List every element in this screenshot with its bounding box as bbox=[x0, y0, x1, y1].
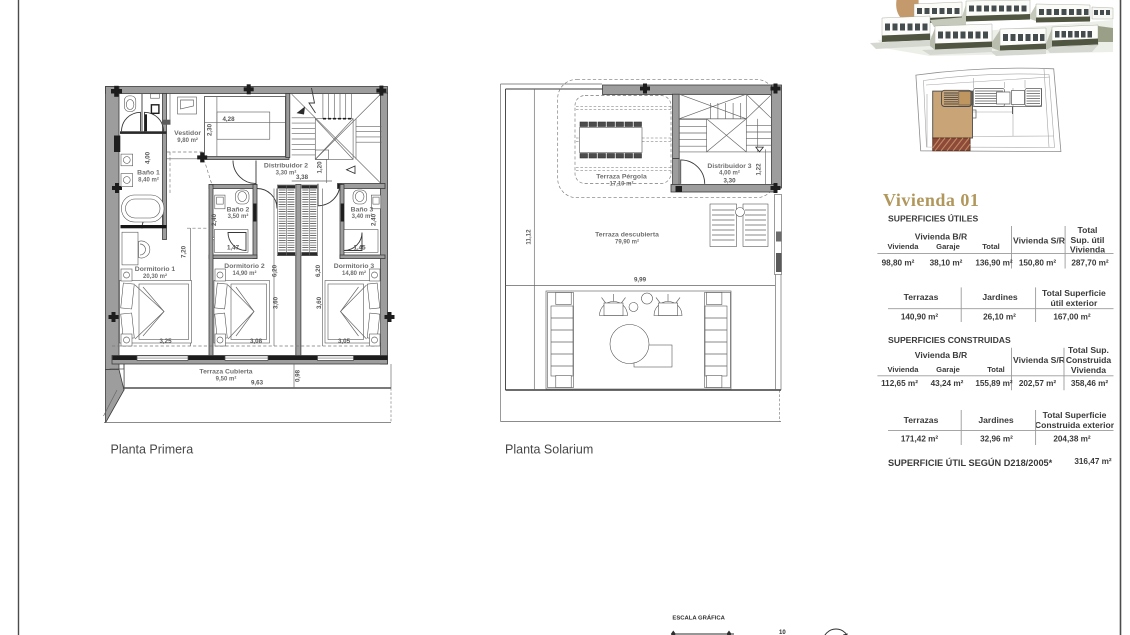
svg-text:2,40: 2,40 bbox=[211, 213, 218, 226]
svg-text:79,90 m²: 79,90 m² bbox=[615, 239, 639, 246]
svg-text:9,99: 9,99 bbox=[634, 277, 647, 284]
svg-text:287,70 m²: 287,70 m² bbox=[1071, 259, 1109, 268]
svg-text:Vivienda S/R: Vivienda S/R bbox=[1013, 355, 1066, 365]
svg-text:Terraza Cubierta: Terraza Cubierta bbox=[199, 369, 252, 376]
svg-text:Total Superficie: Total Superficie bbox=[1042, 288, 1106, 298]
svg-text:Terraza Pérgola: Terraza Pérgola bbox=[596, 174, 647, 181]
svg-text:3,30 m²: 3,30 m² bbox=[276, 170, 297, 177]
svg-text:Baño 2: Baño 2 bbox=[227, 207, 250, 214]
svg-text:Vivienda 01: Vivienda 01 bbox=[883, 190, 979, 210]
svg-text:Jardines: Jardines bbox=[978, 415, 1014, 425]
svg-text:3,05: 3,05 bbox=[338, 338, 351, 345]
svg-text:155,89 m²: 155,89 m² bbox=[975, 379, 1013, 388]
svg-text:3,40 m²: 3,40 m² bbox=[352, 213, 373, 220]
svg-text:3,60: 3,60 bbox=[273, 296, 280, 309]
svg-text:Dormitorio 1: Dormitorio 1 bbox=[135, 266, 176, 273]
svg-text:SUPERFICIE ÚTIL SEGÚN D218/200: SUPERFICIE ÚTIL SEGÚN D218/2005* bbox=[888, 457, 1053, 468]
svg-text:26,10 m²: 26,10 m² bbox=[983, 313, 1016, 322]
svg-text:204,38 m²: 204,38 m² bbox=[1053, 435, 1091, 444]
svg-text:Terrazas: Terrazas bbox=[904, 415, 939, 425]
svg-text:1,22: 1,22 bbox=[755, 163, 762, 176]
svg-text:38,10 m²: 38,10 m² bbox=[930, 259, 963, 268]
svg-text:Vivienda S/R: Vivienda S/R bbox=[1013, 236, 1066, 246]
svg-text:14,90 m²: 14,90 m² bbox=[232, 270, 256, 277]
svg-text:9,63: 9,63 bbox=[251, 380, 264, 387]
svg-text:171,42 m²: 171,42 m² bbox=[901, 435, 939, 444]
svg-text:Planta Primera: Planta Primera bbox=[111, 443, 194, 457]
svg-text:3,38: 3,38 bbox=[296, 174, 309, 181]
svg-text:112,65 m²: 112,65 m² bbox=[881, 379, 918, 388]
svg-text:9,80 m²: 9,80 m² bbox=[177, 137, 198, 144]
svg-text:3,30: 3,30 bbox=[723, 178, 736, 185]
svg-text:167,00 m²: 167,00 m² bbox=[1053, 313, 1091, 322]
svg-text:4,00 m²: 4,00 m² bbox=[719, 170, 740, 177]
svg-text:Vivienda: Vivienda bbox=[887, 242, 919, 251]
svg-text:20,30 m²: 20,30 m² bbox=[143, 273, 167, 280]
svg-text:136,90 m²: 136,90 m² bbox=[975, 259, 1013, 268]
svg-text:3,50 m²: 3,50 m² bbox=[228, 213, 249, 220]
svg-text:6,20: 6,20 bbox=[272, 264, 279, 277]
svg-text:6,20: 6,20 bbox=[315, 264, 322, 277]
svg-text:Vivienda: Vivienda bbox=[887, 365, 919, 374]
svg-text:Total: Total bbox=[987, 365, 1005, 374]
svg-text:150,80 m²: 150,80 m² bbox=[1019, 259, 1057, 268]
svg-text:1,45: 1,45 bbox=[353, 245, 366, 252]
svg-text:Construida: Construida bbox=[1066, 355, 1112, 365]
svg-text:43,24 m²: 43,24 m² bbox=[931, 379, 964, 388]
svg-text:10: 10 bbox=[779, 630, 786, 635]
svg-text:8,40 m²: 8,40 m² bbox=[138, 177, 159, 184]
svg-text:140,90 m²: 140,90 m² bbox=[901, 313, 939, 322]
svg-text:Vivienda: Vivienda bbox=[1070, 244, 1105, 254]
svg-text:Vivienda: Vivienda bbox=[1071, 365, 1106, 375]
svg-text:3,25: 3,25 bbox=[159, 338, 172, 345]
svg-text:7,20: 7,20 bbox=[181, 245, 188, 258]
svg-text:98,80 m²: 98,80 m² bbox=[882, 259, 915, 268]
svg-text:Dormitorio 3: Dormitorio 3 bbox=[334, 263, 375, 270]
svg-text:Baño 3: Baño 3 bbox=[351, 207, 374, 214]
svg-text:1,20: 1,20 bbox=[317, 161, 324, 174]
svg-text:3,08: 3,08 bbox=[250, 338, 263, 345]
svg-text:0,98: 0,98 bbox=[295, 369, 302, 382]
svg-text:2,30: 2,30 bbox=[207, 123, 214, 136]
svg-text:Garaje: Garaje bbox=[936, 365, 960, 374]
svg-text:1,47: 1,47 bbox=[227, 245, 240, 252]
svg-text:Total Superficie: Total Superficie bbox=[1043, 410, 1107, 420]
svg-text:316,47 m²: 316,47 m² bbox=[1074, 457, 1112, 466]
svg-text:Baño 1: Baño 1 bbox=[137, 170, 160, 177]
svg-text:17,10 m²: 17,10 m² bbox=[609, 181, 633, 188]
svg-text:Planta Solarium: Planta Solarium bbox=[505, 443, 593, 457]
svg-text:Total: Total bbox=[982, 242, 1000, 251]
svg-text:Vivienda B/R: Vivienda B/R bbox=[915, 350, 968, 360]
svg-text:358,46 m²: 358,46 m² bbox=[1071, 379, 1109, 388]
svg-text:Garaje: Garaje bbox=[936, 242, 960, 251]
svg-text:202,57 m²: 202,57 m² bbox=[1019, 379, 1057, 388]
svg-text:9,50 m²: 9,50 m² bbox=[216, 376, 237, 383]
svg-text:Distribuidor 2: Distribuidor 2 bbox=[264, 163, 308, 170]
svg-text:SUPERFICIES CONSTRUIDAS: SUPERFICIES CONSTRUIDAS bbox=[888, 335, 1011, 345]
svg-text:4,28: 4,28 bbox=[222, 116, 235, 123]
svg-text:SUPERFICIES ÚTILES: SUPERFICIES ÚTILES bbox=[888, 213, 979, 224]
svg-text:Total Sup.: Total Sup. bbox=[1068, 345, 1109, 355]
svg-text:Vestidor: Vestidor bbox=[174, 130, 201, 137]
svg-text:32,96 m²: 32,96 m² bbox=[980, 435, 1013, 444]
svg-text:Distribuidor 3: Distribuidor 3 bbox=[707, 163, 751, 170]
svg-text:11,12: 11,12 bbox=[526, 229, 533, 245]
svg-text:Sup. útil: Sup. útil bbox=[1071, 235, 1105, 245]
svg-text:Total: Total bbox=[1078, 225, 1098, 235]
svg-text:14,80 m²: 14,80 m² bbox=[342, 270, 366, 277]
svg-text:3,60: 3,60 bbox=[316, 296, 323, 309]
svg-text:4,00: 4,00 bbox=[145, 151, 152, 164]
svg-text:ESCALA GRÁFICA: ESCALA GRÁFICA bbox=[672, 614, 725, 621]
svg-text:Jardines: Jardines bbox=[982, 292, 1018, 302]
svg-text:útil exterior: útil exterior bbox=[1050, 298, 1097, 308]
svg-text:Dormitorio 2: Dormitorio 2 bbox=[224, 263, 265, 270]
svg-text:Terraza descubierta: Terraza descubierta bbox=[595, 232, 659, 239]
svg-text:Terrazas: Terrazas bbox=[904, 292, 939, 302]
svg-text:Construida exterior: Construida exterior bbox=[1035, 420, 1115, 430]
svg-text:Vivienda B/R: Vivienda B/R bbox=[915, 232, 968, 242]
